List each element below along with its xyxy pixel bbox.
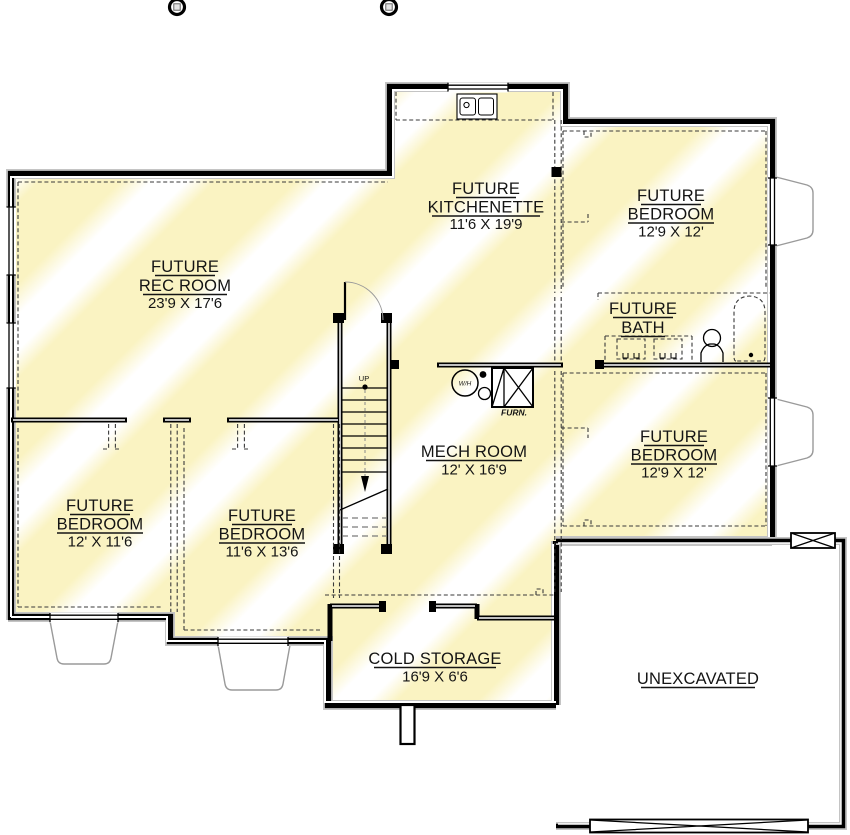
room-name-line: REC ROOM (139, 277, 231, 295)
support-beam (590, 820, 808, 833)
window (6, 207, 16, 275)
room-name-line: COLD STORAGE (368, 650, 501, 668)
room-name-line: BEDROOM (631, 447, 718, 465)
room-dims: 12' X 11'6 (68, 534, 133, 551)
water-heater-label: W/H (459, 381, 472, 388)
room-name-line: FUTURE (609, 300, 677, 318)
room-name-line: BEDROOM (57, 516, 144, 534)
window (218, 637, 288, 647)
room-label-rec-room: FUTURE REC ROOM 23'9 X 17'6 (139, 258, 231, 312)
room-name-line: FUTURE (640, 428, 708, 446)
room-name-line: KITCHENETTE (428, 199, 545, 217)
room-dims: 11'6 X 13'6 (225, 544, 298, 561)
room-name-line: BEDROOM (219, 526, 306, 544)
column-post-icon (382, 0, 397, 15)
room-dims: 12' X 16'9 (441, 462, 507, 479)
window (768, 178, 778, 245)
window (448, 83, 508, 93)
room-dims: 11'6 X 19'9 (449, 216, 522, 233)
window (6, 323, 16, 388)
window-well (776, 399, 813, 466)
room-name-line: BATH (621, 319, 665, 337)
room-name-line: FUTURE (637, 187, 705, 205)
basement-floor-plan: UP W/H FURN. (0, 0, 850, 835)
column-posts (170, 0, 397, 15)
room-label-bedroom-left: FUTURE BEDROOM 12' X 11'6 (57, 497, 144, 551)
cross-block (791, 533, 835, 548)
room-dims: 16'9 X 6'6 (402, 669, 468, 686)
room-name-line: UNEXCAVATED (637, 670, 759, 688)
room-label-bedroom-right: FUTURE BEDROOM 12'9 X 12' (631, 428, 718, 482)
window (50, 613, 118, 623)
room-label-bedroom-top-right: FUTURE BEDROOM 12'9 X 12' (628, 187, 715, 241)
room-name-line: FUTURE (66, 497, 134, 515)
window-well (50, 621, 118, 664)
room-name-line: BEDROOM (628, 206, 715, 224)
room-dims: 12'9 X 12' (641, 465, 707, 482)
room-dims: 23'9 X 17'6 (148, 295, 222, 312)
chimney (401, 705, 415, 744)
room-name-line: FUTURE (228, 507, 296, 525)
column-post-icon (170, 0, 185, 15)
room-dims: 12'9 X 12' (638, 224, 704, 241)
furnace-label: FURN. (501, 408, 527, 418)
room-name-line: FUTURE (452, 180, 520, 198)
basement-floor-plan-page: UP W/H FURN. (0, 0, 850, 835)
window-well (776, 177, 813, 246)
room-name-line: MECH ROOM (421, 443, 527, 461)
window-well (218, 645, 290, 690)
kitchen-sink (457, 94, 497, 119)
room-label-bedroom-mid: FUTURE BEDROOM 11'6 X 13'6 (219, 507, 306, 561)
room-name-line: FUTURE (151, 258, 219, 276)
stairs-up-label: UP (359, 374, 369, 383)
floor-drain (480, 371, 487, 378)
window (768, 398, 778, 466)
future-wall-post (552, 167, 562, 177)
room-label-unexcavated: UNEXCAVATED (637, 670, 759, 688)
